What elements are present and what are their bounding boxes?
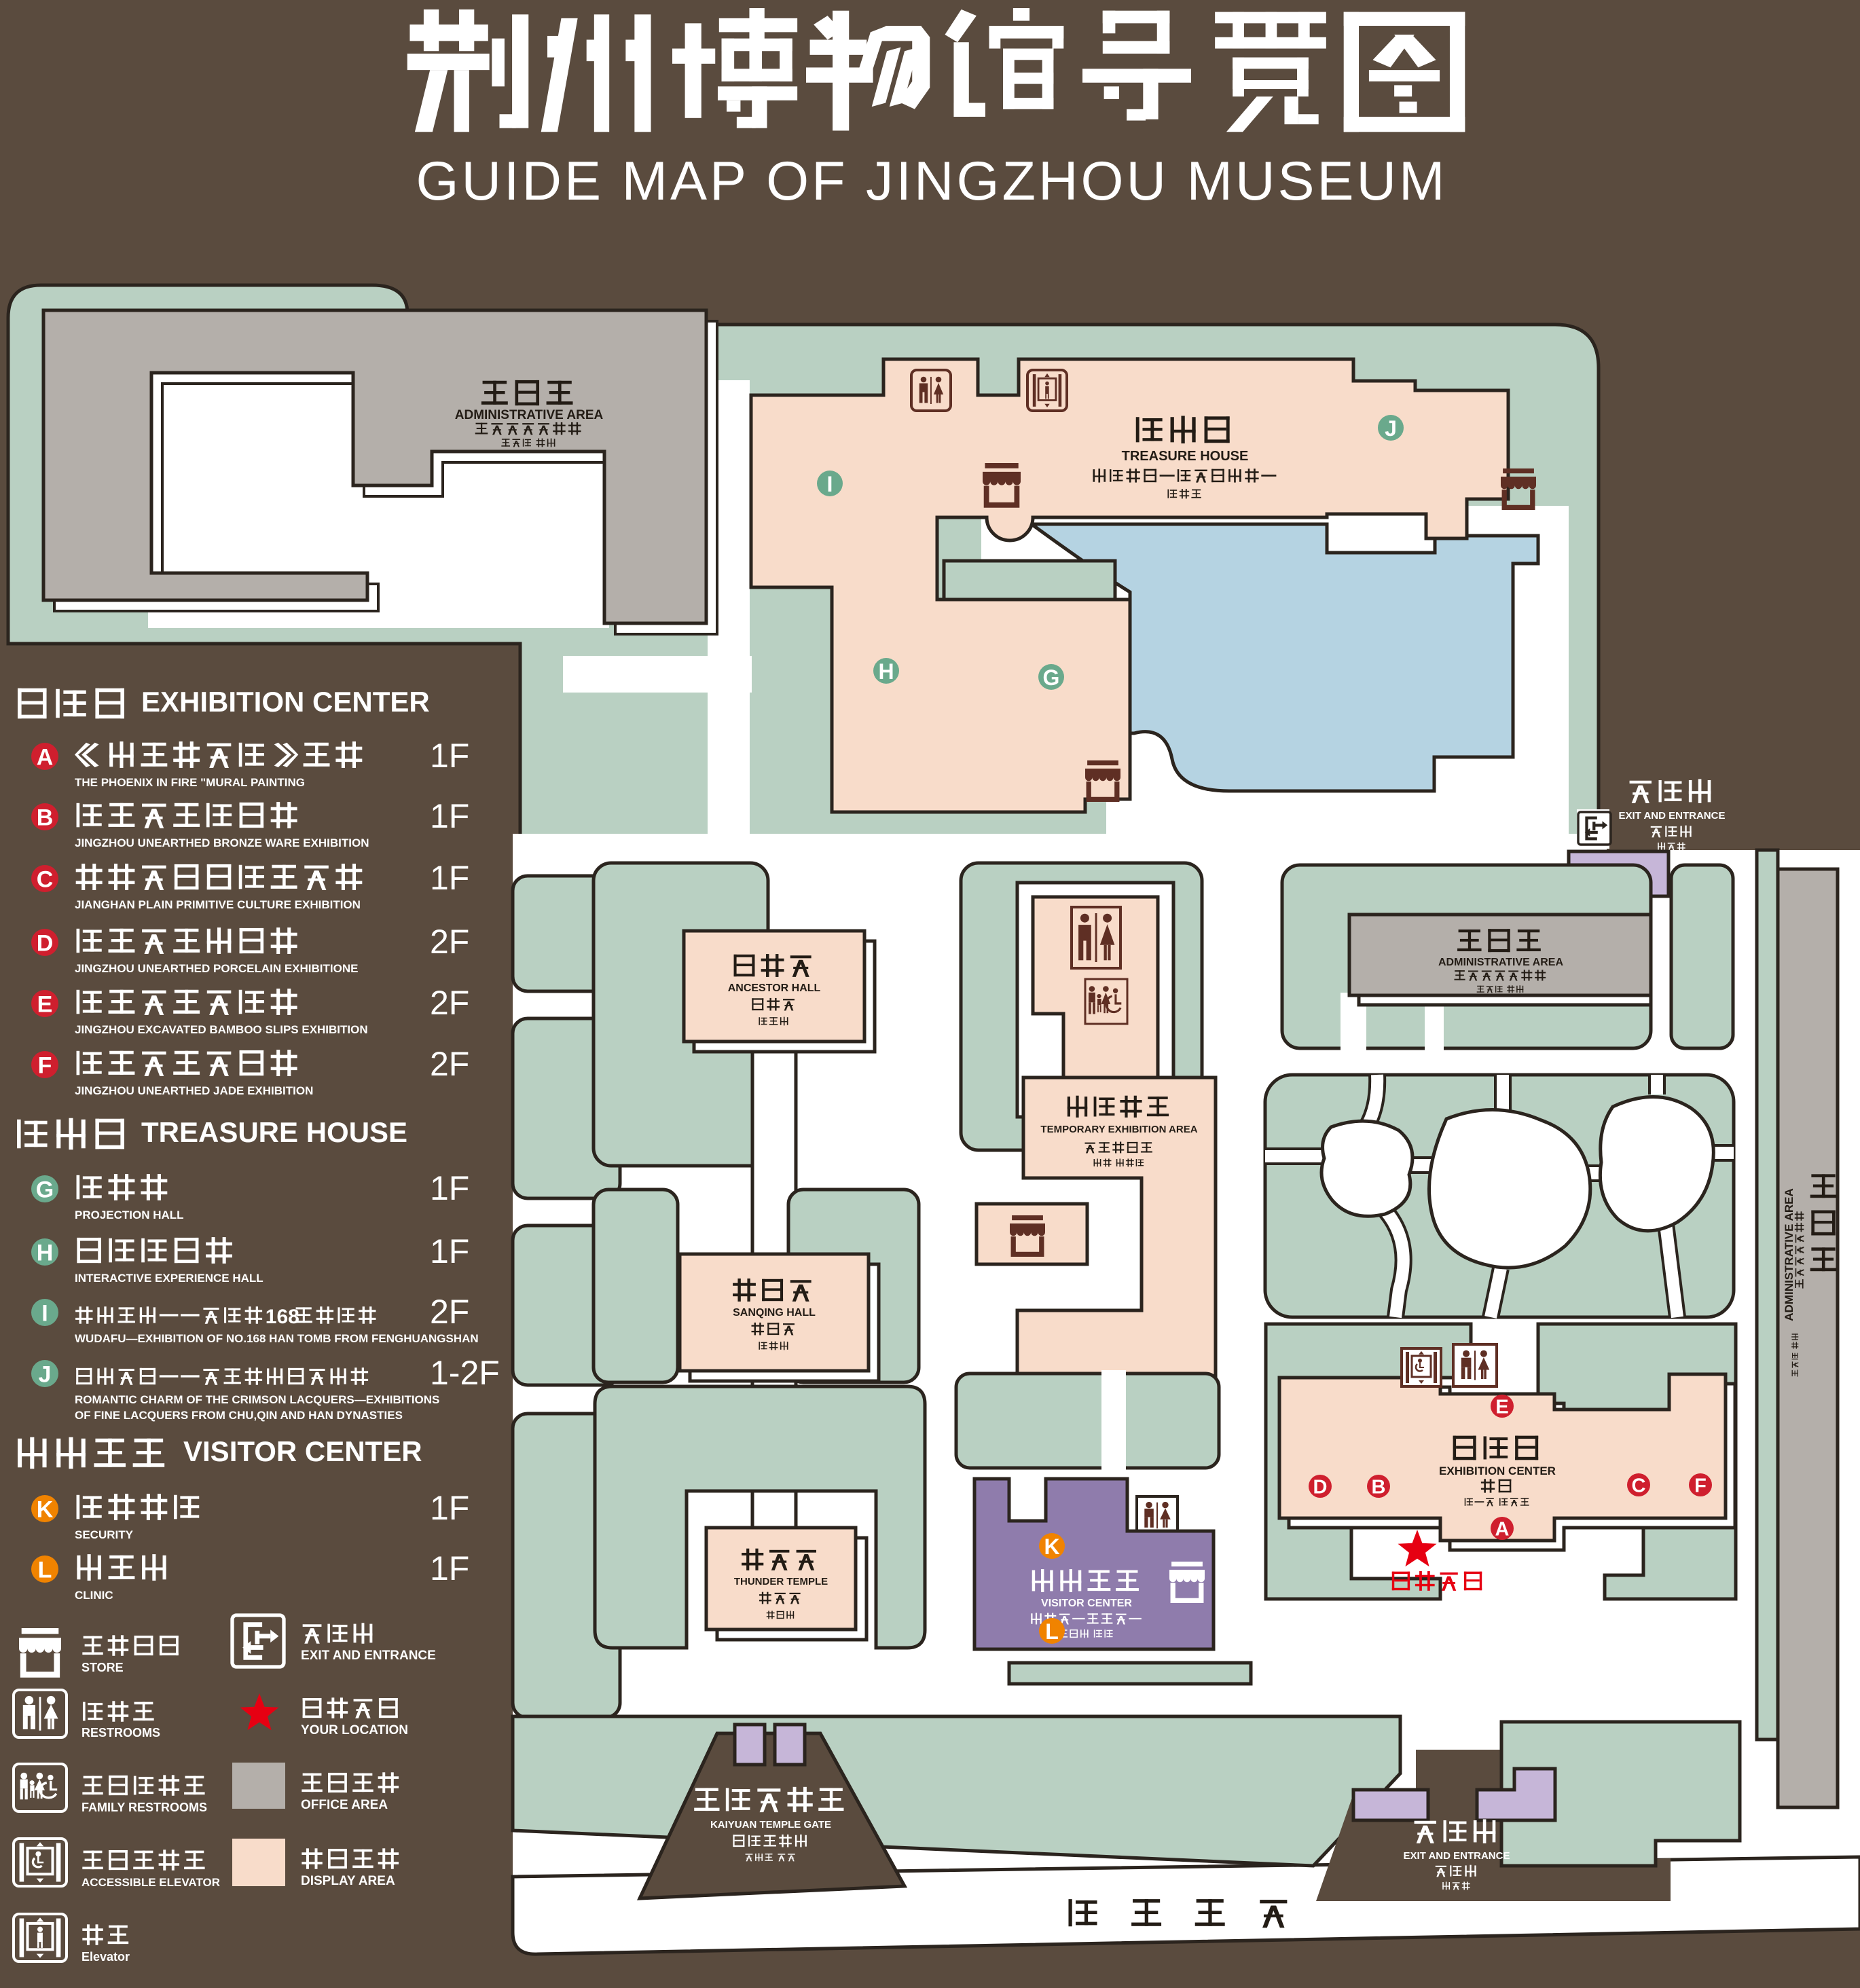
svg-text:L: L bbox=[1045, 1619, 1059, 1644]
svg-text:E: E bbox=[37, 991, 53, 1017]
svg-text:C: C bbox=[37, 866, 54, 892]
svg-text:EXHIBITION CENTER: EXHIBITION CENTER bbox=[1439, 1465, 1556, 1477]
svg-text:ACCESSIBLE ELEVATOR: ACCESSIBLE ELEVATOR bbox=[81, 1876, 220, 1889]
svg-text:E: E bbox=[1495, 1397, 1508, 1418]
svg-text:2F: 2F bbox=[430, 1293, 469, 1331]
svg-text:TEMPORARY EXHIBITION AREA: TEMPORARY EXHIBITION AREA bbox=[1040, 1124, 1197, 1135]
svg-text:G: G bbox=[36, 1177, 54, 1202]
svg-text:EXIT AND ENTRANCE: EXIT AND ENTRANCE bbox=[301, 1649, 436, 1663]
svg-text:B: B bbox=[37, 805, 54, 830]
svg-text:1F: 1F bbox=[430, 1549, 469, 1587]
svg-text:G: G bbox=[1043, 665, 1060, 690]
svg-text:JINGZHOU UNEARTHED JADE EXHIBI: JINGZHOU UNEARTHED JADE EXHIBITION bbox=[75, 1084, 313, 1097]
svg-text:OFFICE AREA: OFFICE AREA bbox=[301, 1798, 388, 1812]
svg-text:ADMINISTRATIVE AREA: ADMINISTRATIVE AREA bbox=[1438, 957, 1563, 968]
svg-text:KAIYUAN TEMPLE GATE: KAIYUAN TEMPLE GATE bbox=[710, 1819, 831, 1830]
svg-text:THUNDER TEMPLE: THUNDER TEMPLE bbox=[734, 1576, 828, 1587]
svg-text:EXIT AND ENTRANCE: EXIT AND ENTRANCE bbox=[1404, 1850, 1510, 1862]
svg-text:1-2F: 1-2F bbox=[430, 1354, 500, 1392]
svg-text:J: J bbox=[1385, 416, 1397, 441]
svg-text:1F: 1F bbox=[430, 797, 469, 835]
svg-text:TREASURE HOUSE: TREASURE HOUSE bbox=[141, 1116, 407, 1148]
svg-text:K: K bbox=[37, 1496, 54, 1522]
svg-text:I: I bbox=[41, 1300, 48, 1326]
svg-text:VISITOR CENTER: VISITOR CENTER bbox=[1041, 1598, 1132, 1609]
svg-text:JIANGHAN PLAIN PRIMITIVE CULTU: JIANGHAN PLAIN PRIMITIVE CULTURE EXHIBIT… bbox=[75, 898, 361, 911]
svg-text:J: J bbox=[39, 1361, 52, 1387]
svg-text:TREASURE HOUSE: TREASURE HOUSE bbox=[1122, 449, 1249, 464]
svg-text:Elevator: Elevator bbox=[81, 1950, 130, 1964]
svg-text:ADMINISTRATIVE AREA: ADMINISTRATIVE AREA bbox=[1783, 1188, 1795, 1321]
svg-text:EXHIBITION CENTER: EXHIBITION CENTER bbox=[141, 686, 430, 718]
svg-text:K: K bbox=[1044, 1534, 1059, 1559]
svg-text:FAMILY RESTROOMS: FAMILY RESTROOMS bbox=[81, 1801, 207, 1814]
svg-text:WUDAFU—EXHIBITION OF NO.168 HA: WUDAFU—EXHIBITION OF NO.168 HAN TOMB FRO… bbox=[75, 1332, 479, 1345]
svg-text:JINGZHOU UNEARTHED PORCELAIN E: JINGZHOU UNEARTHED PORCELAIN EXHIBITIONE bbox=[75, 962, 358, 975]
svg-text:1F: 1F bbox=[430, 737, 469, 775]
svg-text:F: F bbox=[1694, 1475, 1707, 1497]
svg-text:1F: 1F bbox=[430, 1489, 469, 1527]
svg-text:B: B bbox=[1372, 1477, 1386, 1498]
svg-text:ANCESTOR HALL: ANCESTOR HALL bbox=[728, 982, 821, 994]
svg-text:2F: 2F bbox=[430, 984, 469, 1022]
svg-text:ROMANTIC CHARM OF THE CRIMSON: ROMANTIC CHARM OF THE CRIMSON LACQUERS—E… bbox=[75, 1393, 439, 1406]
svg-text:L: L bbox=[38, 1557, 52, 1583]
svg-text:PROJECTION HALL: PROJECTION HALL bbox=[75, 1209, 184, 1221]
svg-text:1F: 1F bbox=[430, 1169, 469, 1207]
svg-text:YOUR LOCATION: YOUR LOCATION bbox=[301, 1723, 408, 1737]
svg-text:OF FINE LACQUERS FROM CHU,QIN: OF FINE LACQUERS FROM CHU,QIN AND HAN DY… bbox=[75, 1409, 403, 1422]
svg-text:F: F bbox=[38, 1052, 52, 1078]
svg-text:D: D bbox=[1313, 1477, 1328, 1498]
svg-text:A: A bbox=[37, 744, 54, 770]
svg-text:I: I bbox=[827, 472, 833, 496]
svg-text:DISPLAY AREA: DISPLAY AREA bbox=[301, 1874, 395, 1888]
svg-text:JINGZHOU UNEARTHED BRONZE WARE: JINGZHOU UNEARTHED BRONZE WARE EXHIBITIO… bbox=[75, 836, 369, 849]
svg-text:1F: 1F bbox=[430, 1232, 469, 1270]
svg-text:2F: 2F bbox=[430, 923, 469, 961]
svg-text:ADMINISTRATIVE AREA: ADMINISTRATIVE AREA bbox=[455, 408, 604, 422]
svg-text:C: C bbox=[1632, 1475, 1646, 1497]
svg-text:H: H bbox=[878, 659, 894, 684]
svg-text:1F: 1F bbox=[430, 859, 469, 897]
svg-text:168: 168 bbox=[266, 1306, 299, 1328]
svg-text:H: H bbox=[37, 1240, 54, 1266]
svg-text:2F: 2F bbox=[430, 1045, 469, 1083]
svg-text:THE PHOENIX IN FIRE "MURAL PAI: THE PHOENIX IN FIRE "MURAL PAINTING bbox=[75, 776, 305, 789]
svg-text:SANQING HALL: SANQING HALL bbox=[733, 1307, 816, 1319]
svg-text:INTERACTIVE EXPERIENCE HALL: INTERACTIVE EXPERIENCE HALL bbox=[75, 1272, 263, 1285]
svg-text:CLINIC: CLINIC bbox=[75, 1589, 113, 1602]
svg-text:D: D bbox=[37, 930, 54, 956]
svg-text:STORE: STORE bbox=[81, 1661, 124, 1674]
svg-text:GUIDE MAP OF JINGZHOU MUSEUM: GUIDE MAP OF JINGZHOU MUSEUM bbox=[416, 151, 1447, 212]
svg-text:JINGZHOU EXCAVATED BAMBOO SLIP: JINGZHOU EXCAVATED BAMBOO SLIPS EXHIBITI… bbox=[75, 1023, 368, 1036]
svg-text:RESTROOMS: RESTROOMS bbox=[81, 1726, 160, 1739]
svg-text:EXIT AND ENTRANCE: EXIT AND ENTRANCE bbox=[1619, 810, 1726, 822]
svg-text:VISITOR CENTER: VISITOR CENTER bbox=[183, 1435, 422, 1467]
svg-text:SECURITY: SECURITY bbox=[75, 1528, 134, 1541]
svg-text:A: A bbox=[1495, 1519, 1510, 1541]
